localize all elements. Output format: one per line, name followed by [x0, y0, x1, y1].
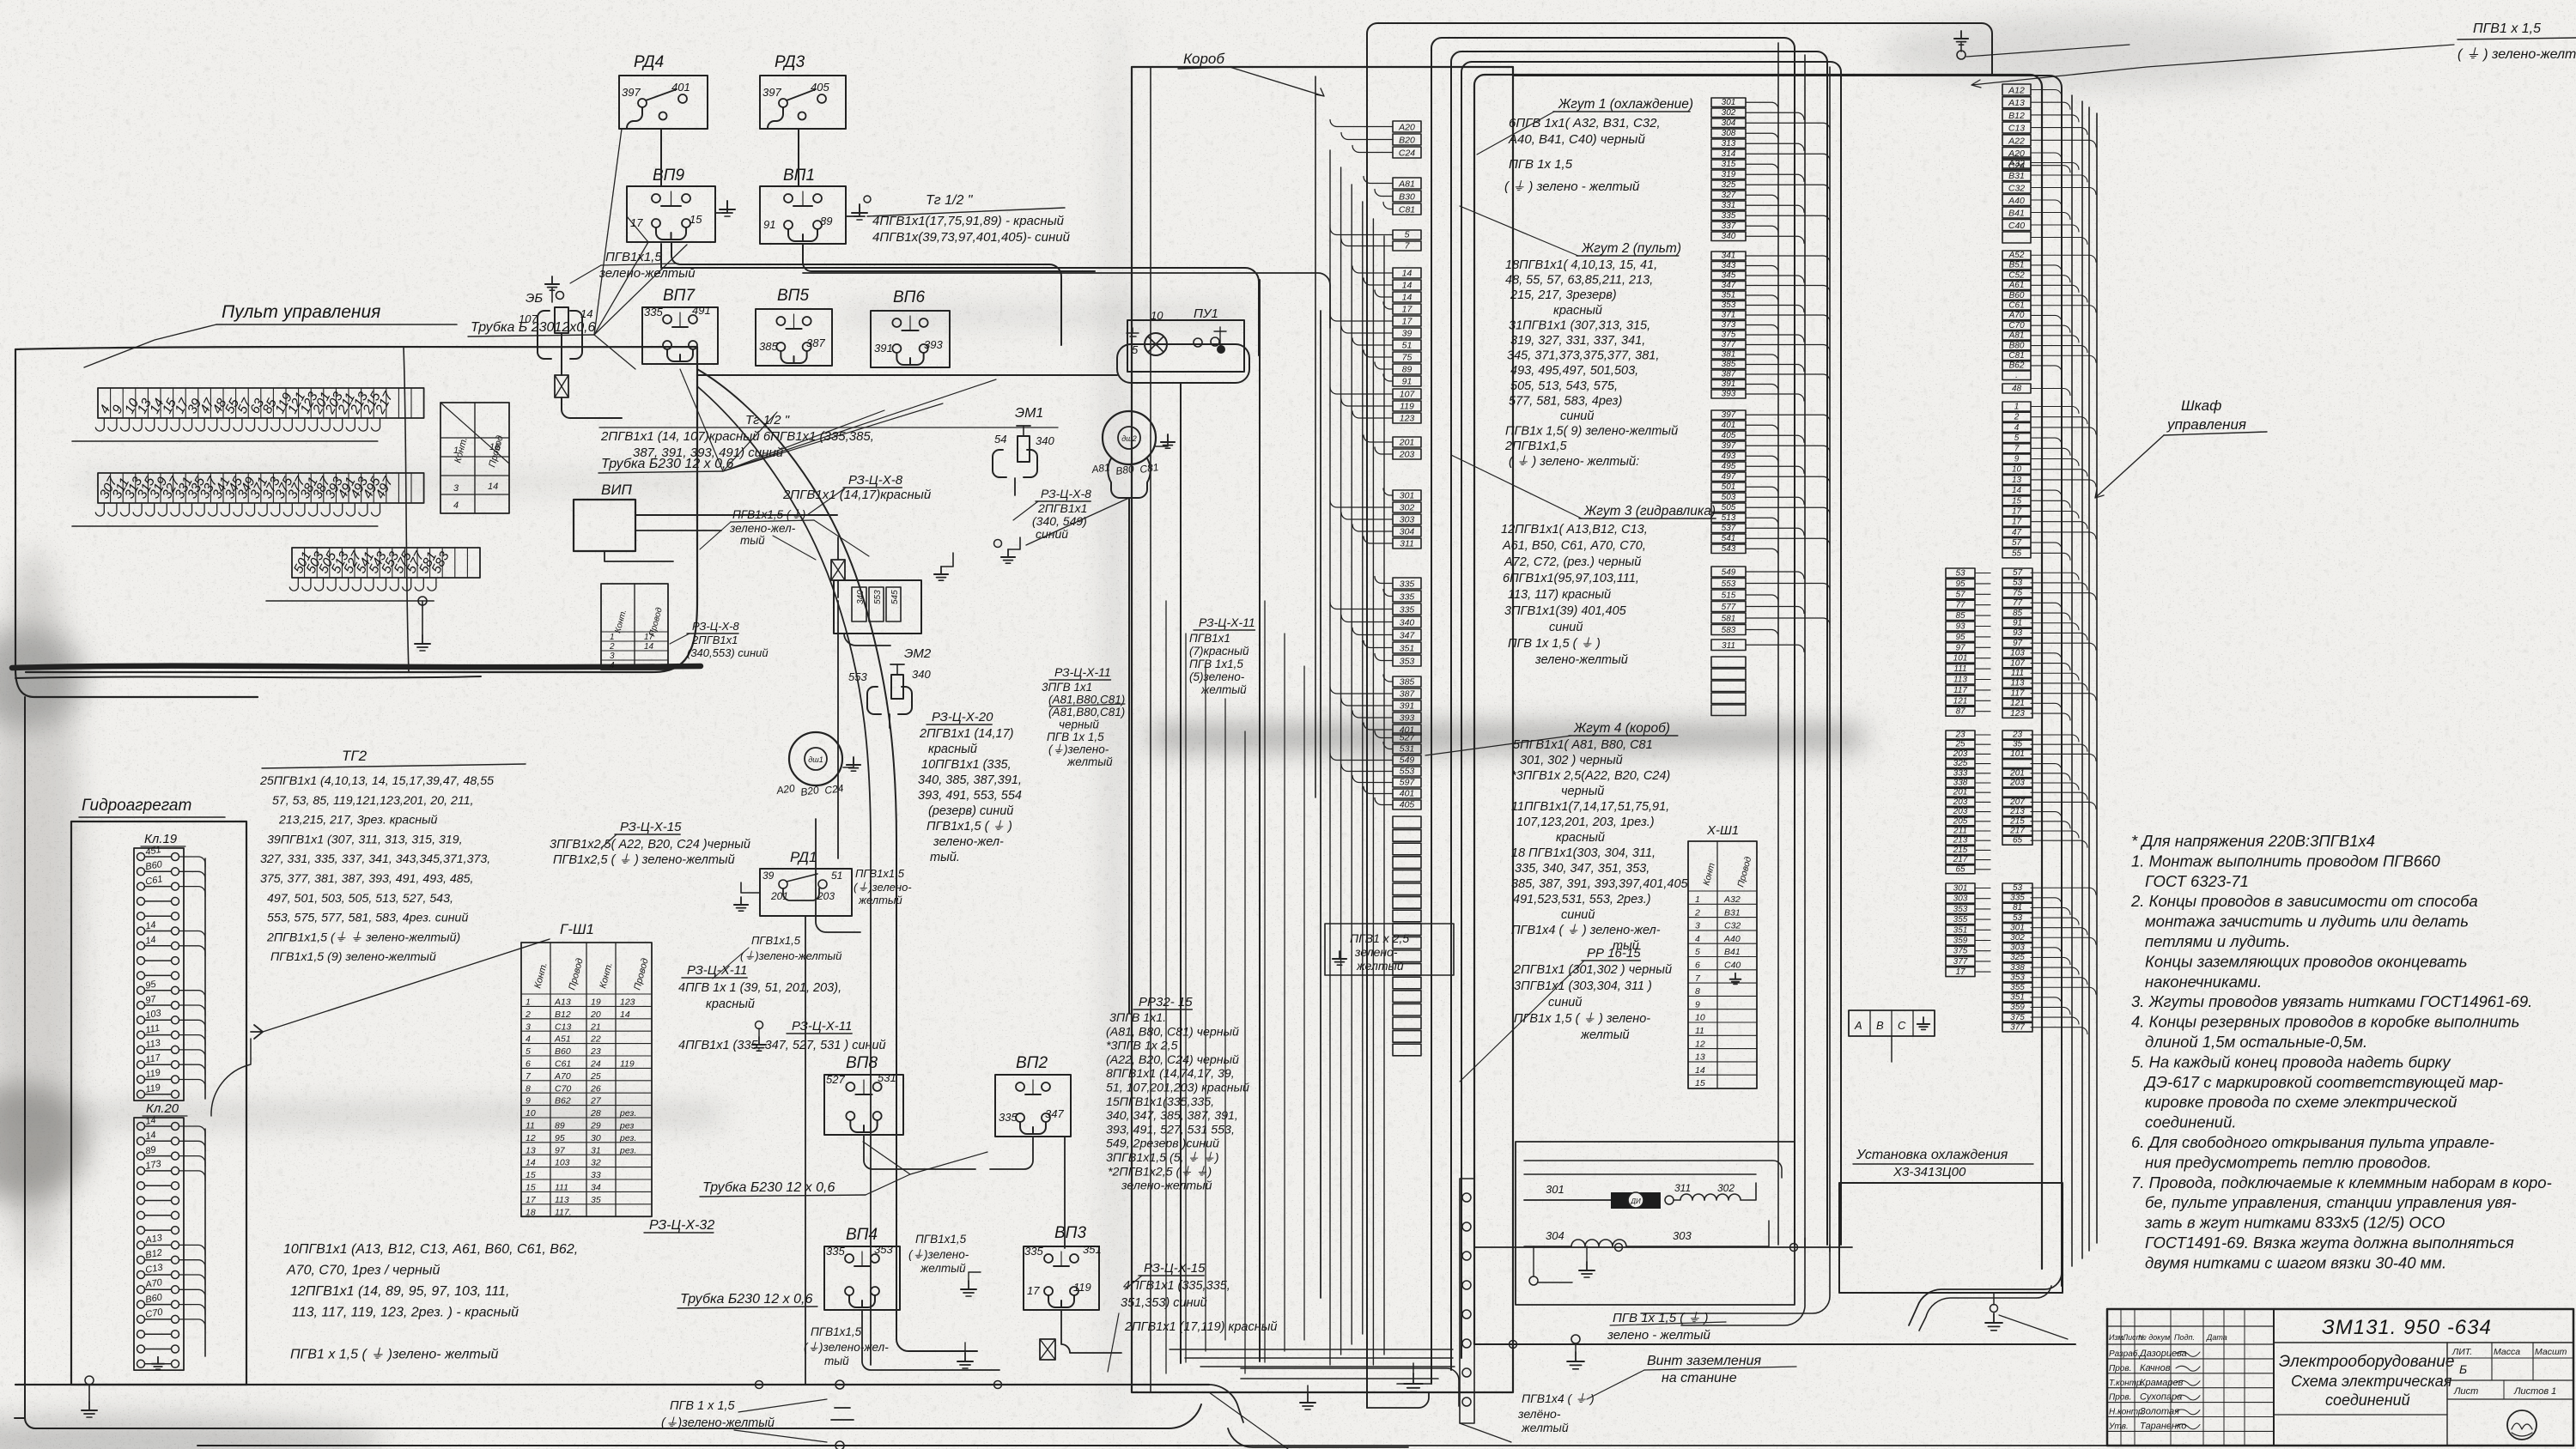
svg-text:ЛИТ.: ЛИТ. — [2451, 1347, 2472, 1357]
svg-text:495: 495 — [1722, 462, 1736, 471]
svg-text:С: С — [1898, 1019, 1906, 1032]
svg-text:8: 8 — [1695, 986, 1700, 997]
svg-text:335: 335 — [1024, 1245, 1043, 1258]
svg-text:С40: С40 — [2008, 221, 2025, 231]
svg-text:89: 89 — [820, 215, 832, 227]
svg-text:355: 355 — [2010, 983, 2025, 992]
svg-text:340: 340 — [1722, 232, 1736, 241]
svg-text:14: 14 — [2012, 486, 2022, 495]
svg-text:Х-Ш1: Х-Ш1 — [1706, 823, 1739, 838]
svg-text:3ПГВ1х1(39) 401,405: 3ПГВ1х1(39) 401,405 — [1504, 604, 1627, 618]
svg-text:Масшт: Масшт — [2535, 1347, 2567, 1357]
svg-text:рез.: рез. — [619, 1145, 636, 1155]
svg-text:327, 331, 335, 337, 341, 343,3: 327, 331, 335, 337, 341, 343,345,371,373… — [260, 852, 490, 866]
svg-text:ПГВ1х4 ( ⏚ ) зелено-жел-: ПГВ1х4 ( ⏚ ) зелено-жел- — [1511, 924, 1661, 937]
svg-text:1: 1 — [526, 997, 531, 1008]
svg-text:ЭМ1: ЭМ1 — [1015, 406, 1043, 421]
svg-text:385: 385 — [1722, 360, 1736, 369]
svg-text:335, 340, 347, 351, 353,: 335, 340, 347, 351, 353, — [1515, 862, 1649, 876]
svg-text:желтый: желтый — [1580, 1028, 1630, 1042]
svg-text:4ПГВ1х1(17,75,91,89) - красный: 4ПГВ1х1(17,75,91,89) - красный — [872, 214, 1065, 228]
svg-text:17: 17 — [1402, 317, 1413, 327]
svg-text:201: 201 — [1953, 788, 1968, 797]
svg-text:23: 23 — [590, 1046, 601, 1057]
svg-text:( ⏚ ) зелено- желтый:: ( ⏚ ) зелено- желтый: — [1509, 455, 1639, 469]
svg-text:97: 97 — [2013, 639, 2023, 648]
svg-text:черный: черный — [1059, 718, 1099, 731]
svg-text:ПГВ1 х 1,5: ПГВ1 х 1,5 — [2473, 21, 2541, 36]
svg-text:29: 29 — [590, 1121, 601, 1131]
svg-text:54: 54 — [994, 433, 1006, 446]
svg-text:28: 28 — [590, 1108, 601, 1119]
svg-text:В41: В41 — [1724, 947, 1741, 957]
svg-text:В12: В12 — [555, 1009, 571, 1020]
svg-text:Короб: Короб — [1183, 51, 1225, 67]
svg-text:5. На каждый конец провода над: 5. На каждый конец провода надеть бирку — [2131, 1052, 2451, 1070]
svg-text:РЗ-Ц-Х-20: РЗ-Ц-Х-20 — [932, 710, 993, 724]
svg-text:монтажа зачистить и лудить или: монтажа зачистить и лудить или делать — [2145, 912, 2469, 931]
svg-text:97: 97 — [1955, 643, 1965, 652]
svg-text:391: 391 — [1722, 379, 1736, 389]
svg-text:17: 17 — [1955, 967, 1965, 977]
svg-text:В80: В80 — [2009, 341, 2025, 350]
svg-text:335: 335 — [1400, 605, 1415, 615]
svg-text:Крамарев: Крамарев — [2140, 1378, 2184, 1388]
svg-text:А32: А32 — [2008, 159, 2025, 169]
svg-text:351: 351 — [1722, 291, 1736, 300]
svg-text:107: 107 — [519, 312, 538, 325]
svg-text:синий: синий — [1548, 996, 1582, 1009]
svg-text:9: 9 — [2014, 455, 2020, 464]
svg-text:351: 351 — [1953, 925, 1968, 935]
svg-text:дш1: дш1 — [808, 755, 823, 764]
svg-text:ПГВ 1х 1,5: ПГВ 1х 1,5 — [1047, 731, 1104, 743]
svg-text:(А81, В80, С81) черный: (А81, В80, С81) черный — [1106, 1025, 1239, 1039]
svg-text:3: 3 — [453, 483, 459, 494]
svg-text:ПУ1: ПУ1 — [1194, 306, 1218, 321]
svg-text:340, 385, 387,391,: 340, 385, 387,391, — [918, 773, 1022, 787]
svg-text:3: 3 — [526, 1022, 531, 1032]
svg-text:217: 217 — [2009, 827, 2025, 836]
svg-text:393, 491, 527, 531 553,: 393, 491, 527, 531 553, — [1106, 1123, 1235, 1137]
svg-text:24: 24 — [590, 1059, 601, 1070]
svg-text:93: 93 — [1955, 622, 1965, 632]
svg-text:Концы заземляющих проводов око: Концы заземляющих проводов оконцевать — [2145, 952, 2467, 970]
svg-text:7: 7 — [2014, 444, 2020, 453]
svg-text:Золотая: Золотая — [2140, 1407, 2179, 1417]
svg-text:13: 13 — [1695, 1052, 1705, 1063]
svg-text:С70: С70 — [2008, 321, 2025, 330]
svg-text:5: 5 — [1695, 947, 1700, 957]
svg-text:393: 393 — [1722, 390, 1736, 399]
svg-text:2ПГВ1х1 (17,119) красный: 2ПГВ1х1 (17,119) красный — [1124, 1320, 1277, 1334]
svg-text:ния предусмотреть петлю провод: ния предусмотреть петлю проводов. — [2145, 1153, 2432, 1171]
svg-text:Подп.: Подп. — [2174, 1333, 2195, 1342]
svg-text:А81: А81 — [1398, 179, 1415, 190]
svg-text:Жгут 2 (пульт): Жгут 2 (пульт) — [1581, 241, 1681, 256]
svg-text:335: 335 — [1400, 579, 1415, 590]
svg-text:*2ПГВ1х2,5 (⏚ ⏚): *2ПГВ1х2,5 (⏚ ⏚) — [1108, 1165, 1212, 1179]
svg-text:15: 15 — [526, 1183, 536, 1193]
svg-text:Винт заземления: Винт заземления — [1647, 1354, 1762, 1368]
svg-text:373: 373 — [1722, 320, 1736, 330]
svg-text:48: 48 — [2012, 385, 2022, 394]
svg-text:2ПГВ1х1,5 (⏚ ⏚ зел: 2ПГВ1х1,5 (⏚ ⏚ зелено-желтый) — [266, 931, 460, 944]
svg-text:ДИ: ДИ — [1630, 1197, 1641, 1205]
svg-text:2ПГВ1х1: 2ПГВ1х1 — [1037, 501, 1087, 515]
svg-text:203: 203 — [1399, 450, 1415, 460]
svg-text:515: 515 — [1722, 591, 1736, 601]
svg-text:13: 13 — [526, 1145, 536, 1155]
svg-text:340, 347, 385, 387, 391,: 340, 347, 385, 387, 391, — [1106, 1109, 1238, 1123]
svg-text:353: 353 — [2010, 973, 2025, 982]
svg-text:340: 340 — [1400, 618, 1415, 628]
svg-text:505: 505 — [1722, 503, 1736, 512]
svg-text:С81: С81 — [2008, 351, 2024, 361]
svg-text:А61, В50, С61, А70, С70,: А61, В50, С61, А70, С70, — [1502, 539, 1646, 553]
svg-text:Пульт управления: Пульт управления — [222, 302, 380, 322]
svg-text:РЗ-Ц-Х-8: РЗ-Ц-Х-8 — [1041, 487, 1091, 500]
svg-text:3ПГВ 1х1.: 3ПГВ 1х1. — [1109, 1011, 1166, 1025]
svg-text:117: 117 — [2011, 688, 2025, 698]
svg-text:ПГВ1х1,5: ПГВ1х1,5 — [751, 934, 801, 947]
svg-text:377: 377 — [1722, 340, 1736, 349]
svg-text:14: 14 — [526, 1158, 536, 1168]
svg-text:В51: В51 — [2009, 261, 2025, 270]
svg-text:553, 575, 577, 581, 583, 4рез.: 553, 575, 577, 581, 583, 4рез. синий — [267, 912, 468, 925]
svg-text:Жгут 1 (охлаждение): Жгут 1 (охлаждение) — [1558, 97, 1693, 112]
svg-text:А70, С70, 1рез / черный: А70, С70, 1рез / черный — [286, 1264, 440, 1278]
svg-text:203: 203 — [2009, 779, 2025, 788]
svg-text:ПГВ 1х 1,5 ( ⏚ ): ПГВ 1х 1,5 ( ⏚ ) — [1508, 637, 1601, 651]
svg-text:С52: С52 — [2008, 270, 2025, 280]
svg-text:2ПГВ1х1,5: 2ПГВ1х1,5 — [1504, 440, 1568, 453]
svg-text:353: 353 — [1400, 657, 1415, 667]
svg-text:11ПГВ1х1(7,14,17,51,75,91,: 11ПГВ1х1(7,14,17,51,75,91, — [1511, 800, 1669, 814]
svg-text:89: 89 — [1402, 365, 1413, 375]
svg-text:397: 397 — [1722, 410, 1736, 420]
svg-text:1: 1 — [453, 446, 459, 456]
svg-text:333: 333 — [1953, 768, 1968, 778]
svg-text:13: 13 — [2012, 476, 2022, 485]
svg-text:Электрооборудование: Электрооборудование — [2279, 1353, 2454, 1371]
svg-text:345, 371,373,375,377, 381,: 345, 371,373,375,377, 381, — [1507, 349, 1659, 363]
svg-text:4: 4 — [610, 661, 615, 670]
svg-text:Х3-3413Ц00: Х3-3413Ц00 — [1893, 1165, 1966, 1179]
svg-text:А52: А52 — [2008, 251, 2025, 260]
svg-text:103: 103 — [555, 1158, 570, 1168]
svg-text:С13: С13 — [2008, 124, 2025, 134]
svg-text:4. Концы резервных проводов в: 4. Концы резервных проводов в коробке вы… — [2131, 1013, 2519, 1031]
svg-text:351: 351 — [1083, 1243, 1102, 1256]
svg-text:ПГВ1х4 ( ⏚ ): ПГВ1х4 ( ⏚ ) — [1522, 1391, 1595, 1405]
svg-text:Кл.19: Кл.19 — [144, 832, 178, 846]
svg-text:С32: С32 — [2008, 184, 2025, 194]
svg-text:В20: В20 — [1399, 136, 1415, 146]
svg-text:2ПГВ1х1 (14,17): 2ПГВ1х1 (14,17) — [919, 727, 1013, 741]
svg-text:11: 11 — [526, 1121, 535, 1131]
svg-text:353: 353 — [1953, 905, 1968, 914]
svg-text:№ докум.: № докум. — [2138, 1333, 2172, 1342]
svg-text:303: 303 — [1673, 1229, 1692, 1242]
svg-text:(⏚)зелено-: (⏚)зелено- — [908, 1248, 969, 1261]
svg-text:В31: В31 — [2008, 171, 2025, 181]
svg-text:(5)зелено-: (5)зелено- — [1189, 670, 1245, 683]
svg-text:ВП5: ВП5 — [777, 287, 809, 305]
svg-text:335: 335 — [1400, 592, 1415, 603]
svg-text:зелено-желтый: зелено-желтый — [1534, 653, 1628, 667]
svg-text:397: 397 — [622, 86, 641, 99]
svg-text:5: 5 — [2014, 433, 2020, 443]
svg-text:117.: 117. — [555, 1207, 572, 1217]
svg-text:57: 57 — [1955, 590, 1965, 599]
svg-text:304: 304 — [1722, 118, 1736, 128]
svg-text:304: 304 — [1546, 1229, 1564, 1242]
svg-text:345: 345 — [1722, 271, 1736, 281]
svg-text:РД1: РД1 — [790, 849, 817, 865]
svg-text:375, 377, 381, 387, 393, 491,: 375, 377, 381, 387, 393, 491, 493, 485, — [260, 872, 474, 886]
svg-text:Пров.: Пров. — [2109, 1393, 2131, 1403]
svg-text:(⏚)зелено-: (⏚)зелено- — [1048, 743, 1109, 756]
svg-text:7. Провода, подключаемые к кле: 7. Провода, подключаемые к клеммным набо… — [2131, 1173, 2552, 1191]
svg-text:34: 34 — [591, 1183, 601, 1193]
svg-text:301: 301 — [2010, 923, 2025, 932]
svg-text:кировке провода по схеме элект: кировке провода по схеме электрической — [2145, 1093, 2457, 1111]
svg-text:20: 20 — [590, 1009, 601, 1020]
svg-text:39: 39 — [1402, 329, 1413, 339]
svg-text:338: 338 — [2010, 963, 2025, 973]
svg-text:синий: синий — [1549, 621, 1583, 634]
svg-text:119: 119 — [620, 1059, 635, 1070]
svg-text:Жгут 4 (короб): Жгут 4 (короб) — [1573, 721, 1670, 736]
svg-text:ПГВ1х1,5: ПГВ1х1,5 — [855, 867, 905, 880]
svg-text:зелено-: зелено- — [1354, 945, 1398, 959]
svg-text:красный: красный — [1553, 304, 1602, 318]
svg-text:Жгут 3 (гидравлика): Жгут 3 (гидравлика) — [1583, 504, 1716, 518]
svg-text:10ПГВ1х1 (А13, В12, С: 10ПГВ1х1 (А13, В12, С13, А61, В60, С61, … — [283, 1242, 578, 1257]
svg-text:С32: С32 — [1724, 921, 1741, 931]
svg-text:121: 121 — [1953, 696, 1968, 706]
svg-text:ДЭ-617 с маркировкой соответст: ДЭ-617 с маркировкой соответствующей мар… — [2143, 1073, 2503, 1091]
svg-text:215: 215 — [2009, 816, 2025, 826]
svg-text:117: 117 — [1953, 686, 1967, 695]
svg-text:545: 545 — [890, 590, 900, 604]
svg-text:желтый: желтый — [858, 894, 902, 906]
svg-text:А22: А22 — [2008, 136, 2025, 146]
svg-text:1: 1 — [1695, 894, 1700, 905]
svg-text:39: 39 — [762, 870, 775, 882]
svg-text:тый: тый — [824, 1355, 849, 1367]
svg-text:Схема электрическая: Схема электрическая — [2291, 1373, 2452, 1390]
svg-text:10: 10 — [526, 1108, 536, 1119]
svg-text:красный: красный — [1556, 831, 1605, 845]
svg-text:377: 377 — [1953, 957, 1968, 967]
svg-text:ВП7: ВП7 — [663, 287, 696, 305]
svg-text:17: 17 — [526, 1195, 537, 1205]
svg-text:РЗ-Ц-Х-15: РЗ-Ц-Х-15 — [620, 820, 682, 834]
svg-text:213: 213 — [2009, 807, 2025, 816]
svg-text:313: 313 — [1722, 139, 1736, 149]
svg-text:319: 319 — [1722, 170, 1736, 179]
svg-text:335: 335 — [644, 306, 663, 318]
svg-text:17: 17 — [2012, 518, 2022, 527]
svg-text:РР 16-15: РР 16-15 — [1587, 946, 1641, 961]
svg-text:РЗ-Ц-Х-15: РЗ-Ц-Х-15 — [1144, 1261, 1206, 1276]
svg-text:( ⏚ ) зелено - желтый: ( ⏚ ) зелено - желтый — [1504, 179, 1640, 194]
svg-text:10: 10 — [2012, 465, 2022, 475]
svg-text:501: 501 — [1722, 482, 1736, 492]
svg-text:65: 65 — [1955, 864, 1965, 874]
svg-text:А13: А13 — [2008, 98, 2025, 108]
svg-text:В: В — [1876, 1019, 1884, 1032]
svg-text:95: 95 — [1955, 633, 1965, 642]
svg-text:387: 387 — [1722, 370, 1736, 379]
svg-text:4: 4 — [453, 500, 459, 511]
svg-text:ПГВ1х1,5 ( ⏚ ): ПГВ1х1,5 ( ⏚ ) — [927, 820, 1012, 834]
svg-text:385, 387, 391, 393,397,401,405: 385, 387, 391, 393,397,401,405 — [1511, 877, 1689, 891]
svg-text:55: 55 — [2012, 549, 2022, 558]
svg-text:2: 2 — [1694, 907, 1700, 918]
svg-text:85: 85 — [1955, 611, 1965, 621]
svg-text:1: 1 — [2014, 403, 2020, 412]
svg-text:2ПГВ1х1: 2ПГВ1х1 — [691, 634, 738, 646]
svg-text:12ПГВ1х1( А13,В12, С13,: 12ПГВ1х1( А13,В12, С13, — [1501, 523, 1648, 537]
svg-text:335: 335 — [2010, 894, 2025, 903]
svg-text:314: 314 — [1722, 149, 1736, 159]
svg-text:301: 301 — [1400, 491, 1415, 501]
svg-text:длиной 1,5м остальные-0,5м.: длиной 1,5м остальные-0,5м. — [2145, 1033, 2367, 1051]
svg-text:ПГВ1х1,5: ПГВ1х1,5 — [915, 1233, 967, 1246]
svg-text:89: 89 — [555, 1121, 565, 1131]
svg-text:4: 4 — [2014, 423, 2020, 433]
svg-text:335: 335 — [1722, 211, 1736, 221]
svg-text:ПГВ1х1,5: ПГВ1х1,5 — [811, 1325, 862, 1338]
svg-text:23: 23 — [2012, 731, 2023, 740]
svg-text:57: 57 — [2012, 538, 2022, 548]
svg-text:205: 205 — [1953, 816, 1968, 826]
svg-text:217: 217 — [1953, 855, 1968, 864]
svg-text:В30: В30 — [1399, 192, 1415, 203]
svg-text:32: 32 — [591, 1158, 601, 1168]
svg-text:311: 311 — [1674, 1182, 1691, 1194]
svg-text:22: 22 — [590, 1034, 601, 1045]
svg-text:75: 75 — [1402, 353, 1413, 363]
svg-text:14: 14 — [144, 935, 156, 947]
svg-text:302: 302 — [2010, 933, 2025, 943]
svg-text:201: 201 — [2009, 768, 2025, 778]
svg-text:черный: черный — [1561, 785, 1604, 798]
svg-text:Кл.20: Кл.20 — [146, 1101, 179, 1116]
svg-text:26: 26 — [590, 1083, 601, 1094]
svg-text:347: 347 — [1722, 281, 1736, 290]
svg-text:ВП9: ВП9 — [653, 167, 684, 185]
svg-text:А20: А20 — [1398, 123, 1415, 133]
svg-text:желтый: желтый — [920, 1262, 966, 1275]
svg-text:Качнов: Качнов — [2140, 1363, 2171, 1373]
svg-text:С70: С70 — [555, 1083, 571, 1094]
svg-text:30: 30 — [591, 1133, 601, 1143]
svg-text:синий: синий — [1561, 908, 1595, 922]
svg-text:27: 27 — [590, 1096, 602, 1106]
svg-text:Т.контр.: Т.контр. — [2109, 1379, 2143, 1388]
svg-text:А70: А70 — [554, 1071, 571, 1082]
svg-text:14: 14 — [144, 1115, 156, 1127]
svg-text:4: 4 — [1695, 934, 1700, 944]
svg-text:ГОСТ1491-69. Вязка жгута должн: ГОСТ1491-69. Вязка жгута должна выполнят… — [2145, 1234, 2514, 1252]
svg-text:14: 14 — [1695, 1065, 1705, 1076]
svg-text:107: 107 — [2010, 658, 2025, 668]
svg-text:ВП6: ВП6 — [893, 288, 925, 306]
svg-text:12ПГВ1х1 (14, 89, 95: 12ПГВ1х1 (14, 89, 95, 97, 103, 111, — [290, 1284, 509, 1299]
svg-text:301, 302 ) черный: 301, 302 ) черный — [1520, 754, 1623, 767]
svg-text:375: 375 — [2010, 1013, 2025, 1022]
svg-text:15: 15 — [1695, 1078, 1705, 1088]
svg-text:14: 14 — [644, 642, 654, 652]
svg-text:355: 355 — [1953, 915, 1968, 925]
svg-text:С61: С61 — [555, 1059, 571, 1070]
svg-text:340: 340 — [1036, 434, 1054, 447]
svg-text:Г-Ш1: Г-Ш1 — [560, 921, 594, 937]
svg-text:Листов 1: Листов 1 — [2513, 1386, 2556, 1397]
svg-text:553: 553 — [873, 590, 883, 604]
svg-text:121: 121 — [2010, 699, 2025, 708]
svg-text:35: 35 — [2013, 740, 2023, 749]
svg-text:81: 81 — [2013, 903, 2022, 912]
svg-text:соединений: соединений — [2325, 1391, 2410, 1409]
svg-text:401: 401 — [1722, 421, 1736, 430]
svg-text:493: 493 — [1722, 452, 1736, 461]
svg-text:215, 217, 3резерв): 215, 217, 3резерв) — [1510, 288, 1617, 302]
svg-text:113, 117, 119, 123, 2рез. ) -: 113, 117, 119, 123, 2рез. ) - красный — [292, 1306, 519, 1320]
svg-text:331: 331 — [1722, 201, 1736, 210]
svg-text:577, 581, 583, 4рез): 577, 581, 583, 4рез) — [1509, 394, 1622, 408]
svg-text:4ПГВ1х(39,73,97,401,405)- сини: 4ПГВ1х(39,73,97,401,405)- синий — [872, 230, 1071, 245]
svg-text:зелёно-: зелёно- — [1517, 1407, 1561, 1421]
svg-text:549: 549 — [1400, 755, 1415, 766]
svg-text:325: 325 — [1722, 180, 1736, 190]
svg-text:4: 4 — [526, 1034, 531, 1045]
svg-text:95: 95 — [555, 1133, 565, 1143]
svg-text:1: 1 — [610, 633, 615, 642]
svg-text:Разраб.: Разраб. — [2109, 1349, 2140, 1359]
svg-text:353: 353 — [874, 1243, 893, 1256]
svg-text:на станине: на станине — [1662, 1371, 1737, 1385]
svg-text:113: 113 — [1953, 676, 1967, 685]
svg-text:51: 51 — [1402, 341, 1413, 351]
svg-text:5: 5 — [1405, 230, 1410, 240]
svg-text:325: 325 — [2010, 953, 2025, 962]
svg-text:( ⏚ ) зелено-желтый: ( ⏚ ) зелено-желтый — [2458, 47, 2576, 62]
svg-text:491: 491 — [692, 304, 711, 317]
svg-text:РЗ-Ц-Х-32: РЗ-Ц-Х-32 — [649, 1218, 714, 1233]
svg-text:303: 303 — [1953, 894, 1968, 904]
svg-text:597: 597 — [1400, 778, 1416, 788]
svg-text:1. Монтаж выполнить проводом П: 1. Монтаж выполнить проводом ПГВ660 — [2131, 852, 2440, 870]
svg-text:203: 203 — [1953, 749, 1968, 759]
svg-text:393: 393 — [924, 338, 943, 351]
svg-text:14: 14 — [620, 1009, 630, 1020]
svg-text:371: 371 — [1722, 311, 1736, 320]
svg-text:91: 91 — [2013, 619, 2022, 628]
svg-text:Лист: Лист — [2453, 1386, 2478, 1397]
svg-text:391: 391 — [1400, 701, 1415, 712]
svg-text:РД3: РД3 — [775, 53, 805, 71]
svg-text:12: 12 — [526, 1133, 536, 1143]
svg-text:302: 302 — [1717, 1182, 1735, 1194]
svg-text:С13: С13 — [555, 1022, 571, 1032]
svg-text:359: 359 — [1953, 937, 1968, 946]
svg-text:19: 19 — [591, 997, 601, 1008]
